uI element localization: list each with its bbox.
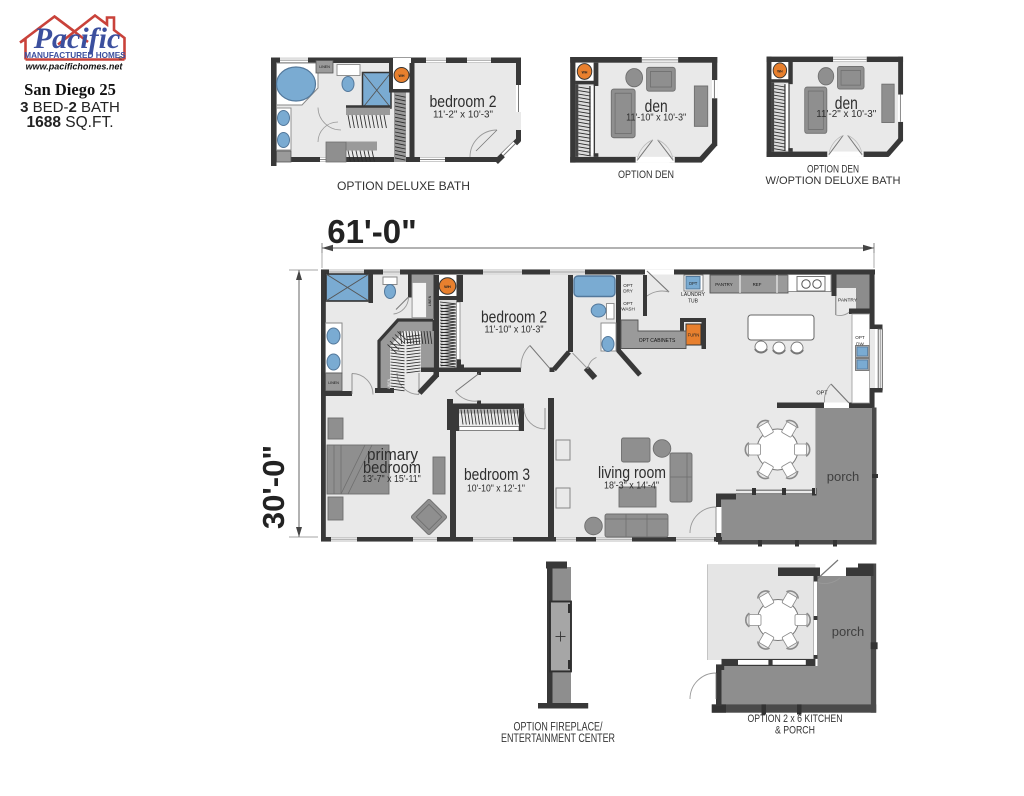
svg-text:OPTION 2 x 6 KITCHEN: OPTION 2 x 6 KITCHEN bbox=[748, 713, 843, 725]
svg-text:PANTRY: PANTRY bbox=[715, 282, 732, 287]
svg-text:13'-7" x 15'-11": 13'-7" x 15'-11" bbox=[362, 474, 421, 485]
svg-text:MANUFACTURED HOMES: MANUFACTURED HOMES bbox=[24, 51, 126, 60]
svg-text:LINEN: LINEN bbox=[387, 378, 391, 389]
svg-text:FURN: FURN bbox=[688, 333, 700, 338]
svg-text:OPTION DELUXE BATH: OPTION DELUXE BATH bbox=[337, 179, 470, 193]
svg-text:TUB: TUB bbox=[688, 299, 699, 305]
svg-text:OPTION DEN: OPTION DEN bbox=[618, 169, 674, 181]
svg-text:61'-0": 61'-0" bbox=[327, 213, 417, 250]
svg-text:WH: WH bbox=[399, 74, 405, 78]
svg-text:porch: porch bbox=[832, 624, 865, 639]
svg-text:WH: WH bbox=[777, 69, 783, 73]
svg-text:WASH: WASH bbox=[621, 307, 635, 312]
svg-text:LINEN: LINEN bbox=[319, 65, 330, 69]
svg-text:11'-2" x 10'-3": 11'-2" x 10'-3" bbox=[816, 109, 877, 120]
svg-text:WH: WH bbox=[444, 284, 451, 289]
svg-text:OPTION DEN: OPTION DEN bbox=[807, 164, 859, 176]
svg-text:REF: REF bbox=[753, 282, 762, 287]
svg-text:OPT CABINETS: OPT CABINETS bbox=[639, 338, 676, 344]
svg-text:bedroom 3: bedroom 3 bbox=[464, 465, 530, 484]
svg-text:OPT: OPT bbox=[816, 391, 828, 397]
svg-text:OPT: OPT bbox=[623, 283, 633, 288]
svg-text:OPT: OPT bbox=[623, 301, 633, 306]
svg-text:30'-0": 30'-0" bbox=[256, 445, 291, 529]
svg-text:OPT: OPT bbox=[689, 281, 698, 286]
svg-text:PANTRY: PANTRY bbox=[838, 298, 858, 304]
svg-text:11'-2" x 10'-3": 11'-2" x 10'-3" bbox=[433, 110, 494, 121]
svg-text:living room: living room bbox=[598, 463, 666, 482]
svg-text:WH: WH bbox=[582, 70, 588, 74]
svg-text:LAUNDRY: LAUNDRY bbox=[681, 292, 705, 298]
svg-text:& PORCH: & PORCH bbox=[775, 725, 815, 737]
svg-text:10'-10" x 12'-1": 10'-10" x 12'-1" bbox=[467, 484, 525, 495]
svg-text:LINEN: LINEN bbox=[328, 381, 339, 385]
svg-text:OPT: OPT bbox=[855, 335, 865, 340]
svg-text:OPTION FIREPLACE/: OPTION FIREPLACE/ bbox=[514, 722, 604, 734]
svg-text:11'-10" x 10'-3": 11'-10" x 10'-3" bbox=[626, 113, 686, 124]
svg-text:www.pacifichomes.net: www.pacifichomes.net bbox=[26, 62, 124, 72]
svg-text:LINEN: LINEN bbox=[428, 295, 432, 306]
svg-text:W/OPTION DELUXE BATH: W/OPTION DELUXE BATH bbox=[766, 175, 901, 187]
svg-text:San Diego 25: San Diego 25 bbox=[24, 80, 116, 99]
svg-text:DRY: DRY bbox=[623, 289, 633, 294]
svg-text:bedroom 2: bedroom 2 bbox=[430, 92, 497, 111]
svg-text:ENTERTAINMENT CENTER: ENTERTAINMENT CENTER bbox=[501, 733, 615, 745]
svg-text:1688 SQ.FT.: 1688 SQ.FT. bbox=[26, 114, 113, 131]
svg-text:porch: porch bbox=[827, 469, 860, 484]
svg-text:18'-3" x 14'-4": 18'-3" x 14'-4" bbox=[604, 480, 659, 491]
svg-text:11'-10" x 10'-3": 11'-10" x 10'-3" bbox=[485, 324, 544, 335]
